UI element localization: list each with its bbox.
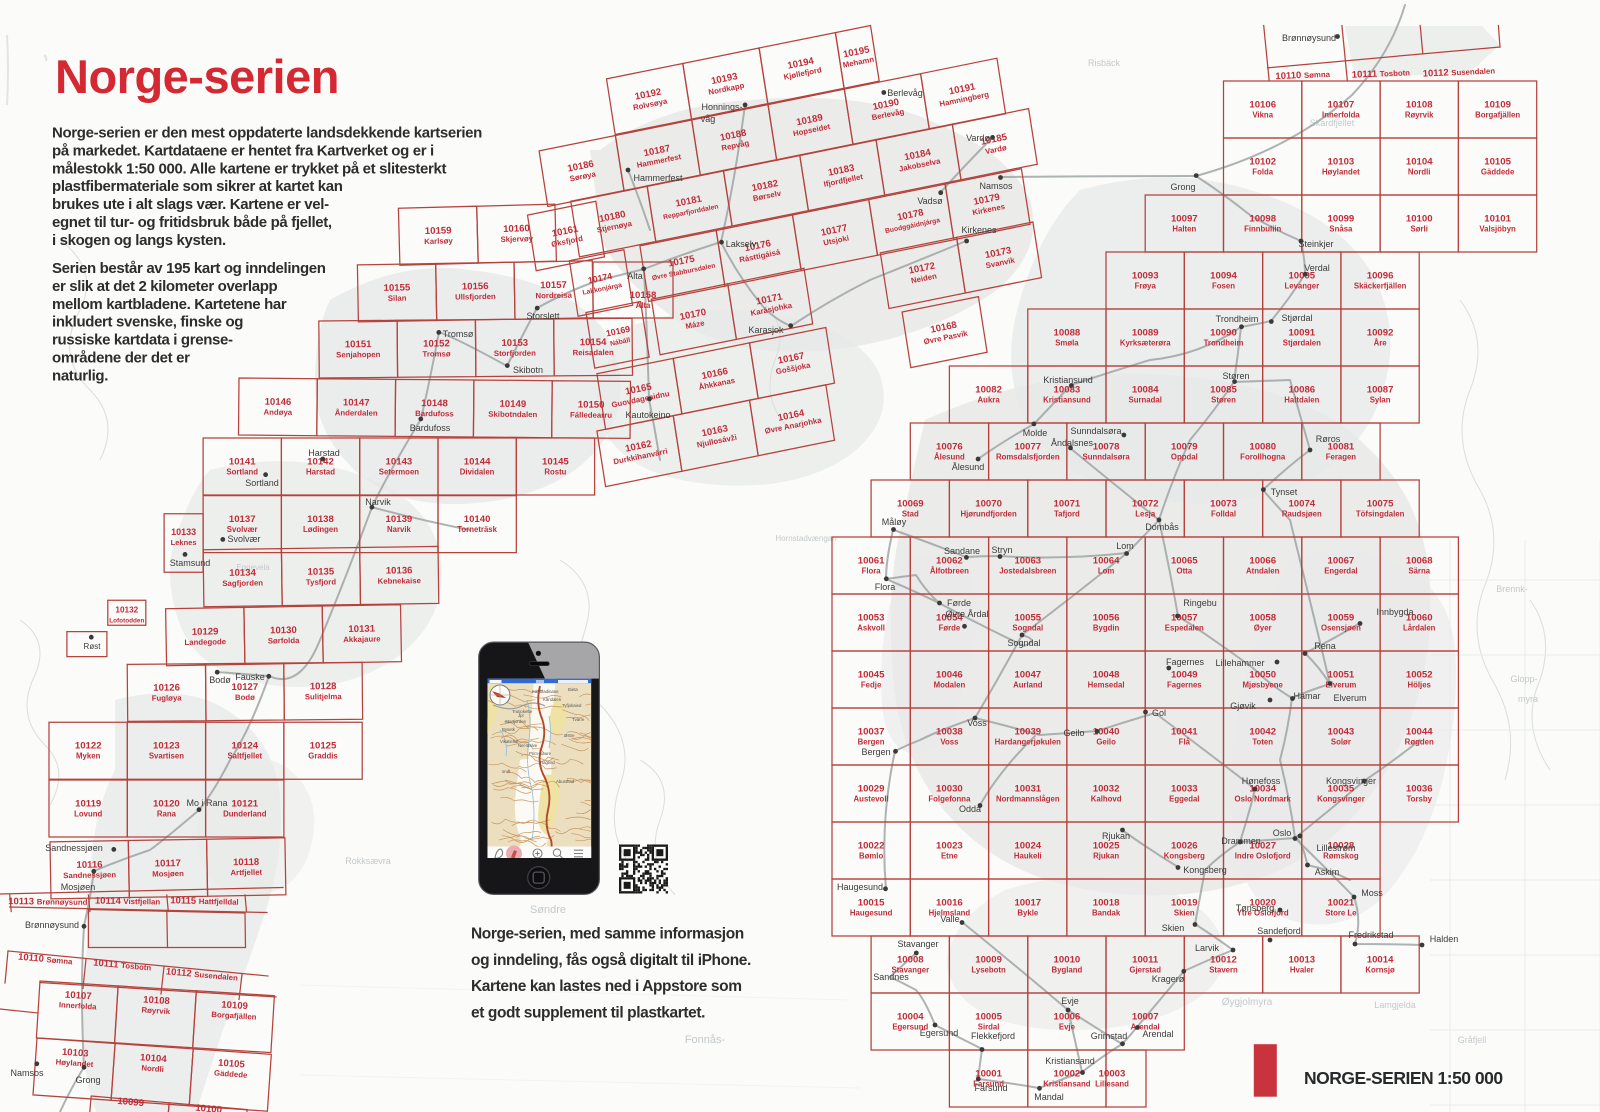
svg-text:Øyer: Øyer [1254, 624, 1272, 633]
svg-text:Modalen: Modalen [934, 681, 966, 690]
svg-text:Røyrvik: Røyrvik [141, 1005, 171, 1016]
svg-text:Norge-serien: Norge-serien [55, 50, 339, 103]
svg-text:Evje: Evje [1061, 996, 1079, 1006]
svg-text:Brønnøysund: Brønnøysund [1282, 33, 1336, 43]
svg-text:10100: 10100 [1406, 214, 1433, 225]
svg-text:10070: 10070 [975, 499, 1002, 510]
svg-text:Leknes: Leknes [171, 538, 197, 547]
svg-text:10075: 10075 [1367, 499, 1394, 510]
svg-text:10141: 10141 [229, 457, 256, 468]
svg-text:Tyfjokaied: Tyfjokaied [562, 703, 582, 708]
svg-text:Snåsa: Snåsa [1329, 225, 1353, 234]
svg-text:Stjørdal: Stjørdal [1281, 313, 1312, 323]
svg-text:Fauske: Fauske [235, 672, 265, 682]
svg-text:10158: 10158 [630, 290, 657, 301]
svg-text:10138: 10138 [307, 514, 334, 525]
svg-text:10099: 10099 [117, 1096, 145, 1109]
svg-text:Tromsø: Tromsø [422, 349, 450, 358]
svg-text:Røros: Røros [1316, 434, 1341, 444]
svg-text:10142: 10142 [307, 457, 334, 468]
svg-text:Kristiansund: Kristiansund [1043, 396, 1091, 405]
svg-text:Rjukan: Rjukan [1102, 831, 1130, 841]
svg-text:Nordli: Nordli [1408, 168, 1431, 177]
svg-text:Flora: Flora [862, 567, 882, 576]
svg-text:10013: 10013 [1288, 955, 1315, 966]
svg-text:Fagernes: Fagernes [1167, 681, 1202, 690]
svg-text:Tromsø: Tromsø [443, 329, 474, 339]
svg-text:Kristiansand: Kristiansand [1043, 1080, 1090, 1089]
svg-text:Sandnes: Sandnes [873, 972, 909, 982]
svg-text:Larvik: Larvik [1195, 943, 1220, 953]
svg-text:Glopp-: Glopp- [1510, 674, 1537, 684]
svg-text:10121: 10121 [231, 799, 258, 810]
svg-text:10022: 10022 [858, 841, 885, 852]
svg-text:Vikna: Vikna [1252, 111, 1273, 120]
svg-text:Skien: Skien [1174, 909, 1195, 918]
svg-text:10160: 10160 [503, 223, 530, 235]
svg-text:Kongsberg: Kongsberg [1183, 865, 1227, 875]
svg-text:10003: 10003 [1099, 1069, 1126, 1080]
svg-text:Mjøsbyene: Mjøsbyene [1243, 681, 1284, 690]
svg-text:10018: 10018 [1093, 898, 1120, 909]
svg-text:10065: 10065 [1171, 556, 1198, 567]
svg-text:Moss: Moss [1361, 888, 1383, 898]
svg-text:Otta: Otta [1176, 567, 1192, 576]
svg-text:10122: 10122 [75, 741, 102, 752]
svg-text:10059: 10059 [1328, 613, 1355, 624]
svg-text:Lødingen: Lødingen [303, 525, 338, 534]
svg-text:Rokksævra: Rokksævra [345, 856, 391, 866]
svg-text:10098: 10098 [1249, 214, 1276, 225]
svg-text:10031: 10031 [1014, 784, 1041, 795]
svg-text:Osensjøen: Osensjøen [1321, 624, 1361, 633]
svg-text:Hønefoss: Hønefoss [1242, 776, 1281, 786]
svg-text:Bergen: Bergen [858, 738, 885, 747]
svg-text:10079: 10079 [1171, 442, 1198, 453]
svg-text:10039: 10039 [1014, 727, 1041, 738]
svg-text:Bergen: Bergen [861, 747, 890, 757]
svg-text:10066: 10066 [1249, 556, 1276, 567]
svg-text:Lillehammer: Lillehammer [1215, 658, 1264, 668]
svg-text:Landegode: Landegode [184, 637, 226, 647]
svg-text:Valsjöbyn: Valsjöbyn [1479, 225, 1516, 234]
svg-text:10029: 10029 [858, 784, 885, 795]
svg-text:10072: 10072 [1132, 499, 1159, 510]
svg-text:10099: 10099 [1328, 214, 1355, 225]
svg-text:Bømlo: Bømlo [859, 852, 883, 861]
svg-text:10148: 10148 [421, 398, 448, 409]
svg-text:områdene der det er: områdene der det er [52, 350, 190, 367]
svg-text:10023: 10023 [936, 841, 963, 852]
svg-text:Geilo: Geilo [1096, 738, 1116, 747]
svg-text:10089: 10089 [1132, 328, 1159, 339]
svg-text:Prim-Søure: Prim-Søure [529, 751, 552, 756]
svg-text:10008: 10008 [897, 955, 924, 966]
svg-text:Kristiansund: Kristiansund [1043, 375, 1093, 385]
svg-text:10124: 10124 [231, 741, 258, 752]
svg-text:sruft: sruft [502, 769, 511, 774]
svg-text:Sandefjord: Sandefjord [1257, 926, 1301, 936]
svg-text:Skäckerfjällen: Skäckerfjällen [1354, 282, 1407, 291]
svg-text:Bykle: Bykle [1017, 909, 1038, 918]
svg-text:Bygland: Bygland [1052, 966, 1083, 975]
svg-text:Store Le: Store Le [1325, 909, 1357, 918]
svg-text:Kornsjø: Kornsjø [1365, 966, 1395, 975]
svg-text:Töfsingdalen: Töfsingdalen [1356, 510, 1405, 519]
svg-text:Fredrikstad: Fredrikstad [1348, 930, 1393, 940]
svg-text:10115 Hattfjelldal: 10115 Hattfjelldal [170, 895, 239, 907]
svg-text:10056: 10056 [1093, 613, 1120, 624]
svg-text:Lillesand: Lillesand [1095, 1080, 1129, 1089]
svg-text:10048: 10048 [1093, 670, 1120, 681]
svg-text:Mosjøen: Mosjøen [61, 882, 96, 892]
svg-text:10145: 10145 [542, 457, 569, 468]
svg-text:Lillestrøm: Lillestrøm [1316, 843, 1355, 853]
svg-text:Fonnås-: Fonnås- [685, 1034, 726, 1046]
svg-text:10092: 10092 [1367, 328, 1394, 339]
svg-text:10007: 10007 [1132, 1012, 1159, 1023]
svg-text:10136: 10136 [386, 565, 413, 576]
svg-text:10061: 10061 [858, 556, 885, 567]
svg-text:Stavern: Stavern [1209, 966, 1238, 975]
svg-text:10119: 10119 [75, 799, 101, 810]
svg-text:Østre: Østre [564, 733, 575, 738]
svg-text:Kåndalen: Kåndalen [543, 697, 562, 702]
svg-text:10087: 10087 [1367, 385, 1394, 396]
svg-text:Halten: Halten [1172, 225, 1196, 234]
svg-text:Jostedalsbreen: Jostedalsbreen [999, 567, 1056, 576]
svg-text:Etne: Etne [941, 852, 959, 861]
svg-text:Svolvær: Svolvær [227, 534, 260, 544]
svg-text:10153: 10153 [501, 338, 528, 349]
svg-text:10139: 10139 [386, 514, 413, 525]
svg-text:Svartisen: Svartisen [149, 752, 184, 761]
svg-text:Flekkefjord: Flekkefjord [971, 1031, 1015, 1041]
svg-text:Ner-Balve: Ner-Balve [518, 743, 538, 748]
svg-text:myra: myra [1518, 694, 1538, 704]
svg-text:Gjøvik: Gjøvik [1230, 701, 1256, 711]
svg-text:Ålesund: Ålesund [952, 462, 985, 472]
svg-text:Grimstad: Grimstad [1091, 1031, 1128, 1041]
svg-text:10100: 10100 [195, 1103, 223, 1112]
svg-text:10088: 10088 [1054, 328, 1081, 339]
svg-text:Fosen: Fosen [1212, 282, 1235, 291]
svg-text:Øygjolmyra: Øygjolmyra [1222, 997, 1273, 1008]
svg-text:Gol: Gol [1152, 708, 1166, 718]
svg-text:10025: 10025 [1093, 841, 1120, 852]
svg-text:Indre Oslofjord: Indre Oslofjord [1235, 852, 1291, 861]
svg-text:Gråfjell: Gråfjell [1458, 1035, 1487, 1045]
svg-text:Sortland: Sortland [226, 468, 258, 477]
svg-text:10135: 10135 [307, 566, 334, 577]
svg-text:Tvarre: Tvarre [572, 717, 585, 722]
svg-text:Finnbuliin: Finnbuliin [1244, 225, 1281, 234]
svg-text:10137: 10137 [229, 514, 256, 525]
svg-text:Nordli: Nordli [141, 1063, 164, 1074]
svg-text:Halden: Halden [1430, 934, 1459, 944]
svg-text:Åre: Åre [1374, 339, 1388, 348]
svg-text:våg: våg [701, 114, 716, 124]
svg-text:10009: 10009 [975, 955, 1002, 966]
svg-text:10063: 10063 [1014, 556, 1041, 567]
svg-text:Senjahopen: Senjahopen [336, 350, 381, 359]
svg-text:10082: 10082 [975, 385, 1002, 396]
svg-text:Bodø: Bodø [209, 675, 231, 685]
svg-text:10017: 10017 [1014, 898, 1041, 909]
svg-text:Akkajaure: Akkajaure [343, 634, 381, 644]
svg-text:10104: 10104 [1406, 157, 1433, 168]
svg-text:10047: 10047 [1014, 670, 1041, 681]
svg-text:10086: 10086 [1288, 385, 1315, 396]
svg-text:10159: 10159 [425, 225, 452, 237]
svg-text:Ånderdalen: Ånderdalen [335, 408, 378, 417]
svg-text:Gäddede: Gäddede [1481, 168, 1515, 177]
svg-text:10071: 10071 [1054, 499, 1081, 510]
svg-text:Stamsund: Stamsund [170, 558, 211, 568]
svg-text:10133: 10133 [171, 527, 196, 537]
svg-text:Askim: Askim [1315, 867, 1340, 877]
svg-text:10151: 10151 [345, 339, 372, 350]
svg-text:Setermoen: Setermoen [379, 468, 420, 477]
svg-text:Måløy: Måløy [882, 517, 907, 527]
svg-text:Sørfolda: Sørfolda [268, 636, 300, 646]
svg-text:i skogen og langs kysten.: i skogen og langs kysten. [52, 232, 226, 249]
svg-text:10069: 10069 [897, 499, 924, 510]
svg-text:10002: 10002 [1054, 1069, 1081, 1080]
svg-text:10106: 10106 [1249, 100, 1276, 111]
svg-text:Sogndal: Sogndal [1007, 638, 1040, 648]
svg-text:Egersund: Egersund [920, 1028, 959, 1038]
svg-text:Vadsø: Vadsø [917, 196, 943, 206]
svg-text:Artfjellet: Artfjellet [230, 868, 262, 878]
svg-text:Haugesund: Haugesund [837, 882, 883, 892]
svg-text:Bygdin: Bygdin [1093, 624, 1120, 633]
svg-text:Sulitjelma: Sulitjelma [305, 692, 343, 701]
svg-text:Hvaler: Hvaler [1290, 966, 1314, 975]
svg-text:Kebnekaise: Kebnekaise [378, 576, 422, 586]
svg-text:10011: 10011 [1132, 955, 1159, 966]
svg-text:10109: 10109 [1484, 100, 1511, 111]
svg-text:Levanger: Levanger [1284, 282, 1319, 291]
svg-text:Ålfotbreen: Ålfotbreen [930, 567, 969, 576]
svg-text:10156: 10156 [462, 281, 489, 292]
svg-text:plastfibermateriale som sikrer: plastfibermateriale som sikrer at kartet… [52, 178, 343, 195]
svg-text:Narvik: Narvik [365, 497, 391, 507]
svg-text:Borgafjällen: Borgafjällen [1475, 111, 1520, 120]
svg-text:10155: 10155 [383, 282, 411, 293]
svg-text:Fagernes: Fagernes [1166, 657, 1205, 667]
svg-text:Folda: Folda [1252, 168, 1273, 177]
svg-text:brukes ute i alt slags vær. Ka: brukes ute i alt slags vær. Kartene er v… [52, 196, 329, 213]
svg-text:10012: 10012 [1210, 955, 1237, 966]
svg-text:Sagfjorden: Sagfjorden [222, 578, 263, 588]
svg-text:10062: 10062 [936, 556, 963, 567]
svg-text:Stjørdalen: Stjørdalen [1283, 339, 1321, 348]
svg-text:10083: 10083 [1054, 385, 1081, 396]
svg-text:Ålesund: Ålesund [934, 453, 965, 462]
svg-text:10024: 10024 [1014, 841, 1041, 852]
svg-text:Innerfolda: Innerfolda [1322, 111, 1360, 120]
svg-text:10093: 10093 [1132, 271, 1159, 282]
svg-text:Fugløya: Fugløya [152, 693, 183, 702]
svg-text:Dunderland: Dunderland [223, 810, 267, 819]
svg-text:10053: 10053 [858, 613, 885, 624]
svg-text:10021: 10021 [1328, 898, 1355, 909]
svg-text:Särna: Särna [1408, 567, 1430, 576]
svg-text:Verdal: Verdal [1304, 263, 1330, 273]
svg-text:Storfjorden: Storfjorden [494, 349, 536, 358]
svg-text:Silan: Silan [388, 294, 407, 303]
svg-text:10149: 10149 [499, 399, 526, 410]
svg-text:10097: 10097 [1171, 214, 1198, 225]
svg-text:10077: 10077 [1014, 442, 1041, 453]
svg-text:Hagtind: Hagtind [540, 760, 555, 765]
svg-text:Skibotndalen: Skibotndalen [488, 410, 537, 419]
svg-text:NORGE-SERIEN 1:50 000: NORGE-SERIEN 1:50 000 [1304, 1068, 1503, 1088]
svg-text:10090: 10090 [1210, 328, 1237, 339]
svg-text:Dividalen: Dividalen [460, 468, 495, 477]
svg-text:Kartene kan lastes ned i Appst: Kartene kan lastes ned i Appstore som [471, 978, 742, 995]
svg-text:10144: 10144 [464, 457, 491, 468]
svg-text:Kongsvinger: Kongsvinger [1326, 776, 1376, 786]
svg-text:Grong: Grong [75, 1075, 100, 1085]
svg-text:Rena: Rena [1314, 641, 1336, 651]
svg-text:Søndre: Søndre [530, 904, 566, 916]
svg-text:målestokk 1:50 000. Alle karte: målestokk 1:50 000. Alle kartene er tryk… [52, 160, 447, 177]
svg-text:10080: 10080 [1249, 442, 1276, 453]
svg-text:Tønsberg: Tønsberg [1236, 903, 1275, 913]
svg-text:10117: 10117 [155, 858, 181, 869]
svg-text:Smøla: Smøla [1055, 339, 1079, 348]
svg-text:Hemsedal: Hemsedal [1088, 681, 1125, 690]
svg-text:Kirkenes: Kirkenes [961, 225, 997, 235]
svg-text:Sylan: Sylan [1370, 396, 1391, 405]
svg-text:10105: 10105 [1484, 157, 1511, 168]
svg-text:Sortland: Sortland [245, 478, 279, 488]
svg-text:Surnadal: Surnadal [1129, 396, 1162, 405]
svg-text:Røyrvik: Røyrvik [1405, 111, 1434, 120]
svg-text:Trondheim: Trondheim [1216, 314, 1259, 324]
svg-text:10146: 10146 [265, 397, 292, 408]
svg-text:Namsos: Namsos [979, 181, 1013, 191]
svg-text:10125: 10125 [310, 741, 337, 752]
svg-text:Engerdal: Engerdal [1324, 567, 1357, 576]
svg-text:Karasjok: Karasjok [748, 325, 784, 335]
svg-text:10126: 10126 [153, 682, 180, 693]
svg-text:Honnings-: Honnings- [701, 102, 742, 112]
svg-text:10076: 10076 [936, 442, 963, 453]
svg-text:Romsdalsfjorden: Romsdalsfjorden [996, 453, 1060, 462]
svg-text:Dombås: Dombås [1145, 522, 1179, 532]
svg-text:10078: 10078 [1093, 442, 1120, 453]
svg-text:Kyrksæterøra: Kyrksæterøra [1120, 339, 1171, 348]
svg-text:Mandal: Mandal [1034, 1092, 1064, 1102]
svg-text:10010: 10010 [1054, 955, 1081, 966]
svg-text:Norge-serien, med samme inform: Norge-serien, med samme informasjon [471, 926, 744, 943]
svg-text:Raudsjøen: Raudsjøen [1282, 510, 1322, 519]
svg-text:Lysebotn: Lysebotn [971, 966, 1006, 975]
svg-text:Lesja: Lesja [1135, 510, 1156, 519]
svg-text:Eggedal: Eggedal [1169, 795, 1199, 804]
svg-text:Arendal: Arendal [1142, 1029, 1173, 1039]
svg-text:10006: 10006 [1054, 1012, 1081, 1023]
svg-text:Steinkjer: Steinkjer [1298, 239, 1333, 249]
svg-text:Bieta: Bieta [568, 687, 578, 692]
svg-text:10037: 10037 [858, 727, 885, 738]
svg-text:Aurland: Aurland [1013, 681, 1043, 690]
svg-text:Reisadalen: Reisadalen [573, 348, 614, 357]
svg-text:Torneträsk: Torneträsk [457, 525, 497, 534]
svg-text:10016: 10016 [936, 898, 963, 909]
svg-text:10116: 10116 [76, 859, 102, 870]
svg-text:10042: 10042 [1249, 727, 1276, 738]
svg-text:Solør: Solør [1331, 738, 1351, 747]
svg-text:Fálledearru: Fálledearru [570, 410, 612, 419]
svg-text:Lårdalen: Lårdalen [1403, 624, 1436, 633]
svg-text:inkludert svenske, finske og: inkludert svenske, finske og [52, 314, 243, 331]
svg-text:Saltfjellet: Saltfjellet [227, 752, 262, 761]
svg-text:Kongsvinger: Kongsvinger [1317, 795, 1365, 804]
svg-text:russiske kartdata i grense-: russiske kartdata i grense- [52, 332, 233, 349]
svg-text:10057: 10057 [1171, 613, 1198, 624]
svg-text:10030: 10030 [936, 784, 963, 795]
svg-text:Hammerfest: Hammerfest [633, 173, 683, 183]
svg-text:Førde: Førde [947, 598, 971, 608]
svg-text:Sandane: Sandane [944, 546, 980, 556]
svg-text:Nordmannslågen: Nordmannslågen [996, 795, 1060, 804]
svg-text:Myken: Myken [76, 752, 101, 761]
svg-text:10157: 10157 [540, 280, 567, 291]
svg-text:10043: 10043 [1328, 727, 1355, 738]
svg-text:Narvik: Narvik [387, 525, 412, 534]
svg-text:Toten: Toten [1252, 738, 1273, 747]
svg-text:egnet til tur- og fritidsbruk: egnet til tur- og fritidsbruk både på fj… [52, 214, 332, 231]
svg-text:Trondheim: Trondheim [1204, 339, 1244, 348]
svg-text:Hardangerjøkulen: Hardangerjøkulen [995, 738, 1062, 747]
svg-text:Vikatiellat: Vikatiellat [500, 739, 519, 744]
svg-text:Hjørundfjorden: Hjørundfjorden [960, 510, 1017, 519]
svg-text:Høylandet: Høylandet [1322, 168, 1360, 177]
svg-text:Sørli: Sørli [1411, 225, 1428, 234]
svg-text:Feragen: Feragen [1326, 453, 1357, 462]
svg-text:10052: 10052 [1406, 670, 1433, 681]
svg-text:10094: 10094 [1210, 271, 1237, 282]
svg-text:Øvre Årdal: Øvre Årdal [945, 609, 988, 619]
svg-text:Graddis: Graddis [308, 752, 338, 761]
svg-text:10004: 10004 [897, 1012, 924, 1023]
svg-text:10101: 10101 [1484, 214, 1511, 225]
svg-text:Kongsberg: Kongsberg [1164, 852, 1205, 861]
svg-text:Sunndalsøra: Sunndalsøra [1082, 453, 1130, 462]
svg-text:Sogndal: Sogndal [1012, 624, 1043, 633]
svg-text:Jpr: Jpr [518, 713, 525, 718]
svg-text:10129: 10129 [192, 626, 219, 637]
svg-text:Karlsøy: Karlsøy [424, 236, 453, 246]
svg-text:Oppdal: Oppdal [1171, 453, 1198, 462]
svg-text:10113 Brønnøysund: 10113 Brønnøysund [8, 896, 88, 908]
svg-text:10131: 10131 [348, 624, 376, 635]
svg-text:Kalhovd: Kalhovd [1091, 795, 1122, 804]
svg-text:Kragerø: Kragerø [1152, 974, 1185, 984]
svg-text:10143: 10143 [386, 457, 413, 468]
svg-text:Austevoll: Austevoll [854, 795, 889, 804]
svg-text:på markedet. Kartdataene er he: på markedet. Kartdataene er hentet fra K… [52, 142, 434, 159]
svg-text:Tysfjord: Tysfjord [306, 577, 337, 586]
svg-text:Berlevåg: Berlevåg [887, 88, 923, 98]
svg-text:10067: 10067 [1328, 556, 1355, 567]
svg-text:Kartbladinane: Kartbladinane [532, 689, 559, 694]
svg-text:10019: 10019 [1171, 898, 1198, 909]
